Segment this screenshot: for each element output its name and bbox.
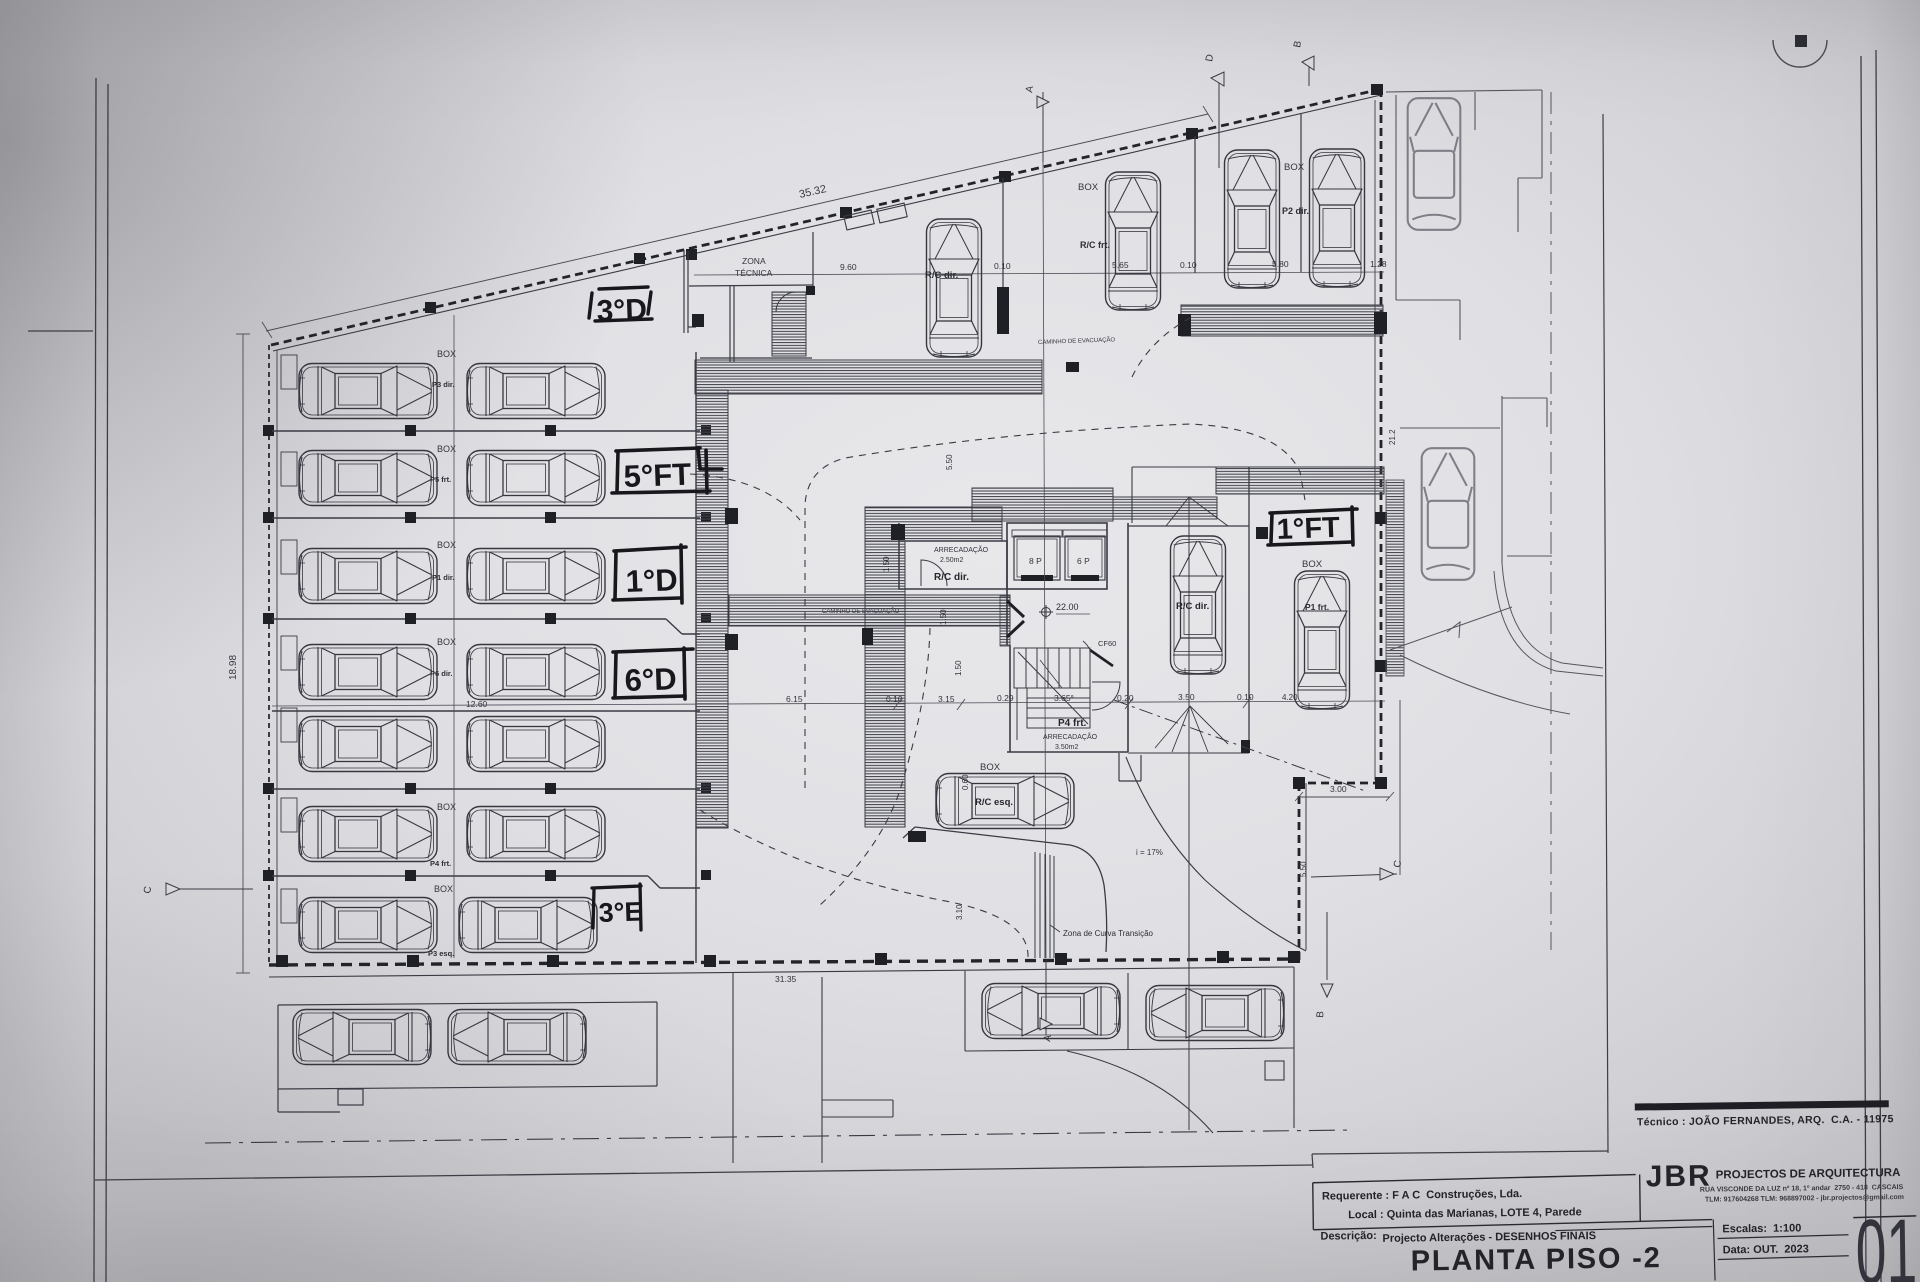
svg-text:35.32: 35.32 (798, 183, 828, 201)
svg-text:5°FT: 5°FT (623, 457, 692, 494)
svg-text:P1 dir.: P1 dir. (432, 573, 455, 582)
svg-text:C: C (1392, 859, 1404, 868)
svg-text:Data: OUT. 2023: Data: OUT. 2023 (1723, 1243, 1809, 1256)
svg-text:5.65: 5.65 (1112, 260, 1129, 270)
svg-text:BOX: BOX (437, 444, 456, 454)
svg-text:BOX: BOX (1302, 559, 1323, 570)
svg-text:BOX: BOX (1078, 182, 1099, 193)
svg-text:2.50m2: 2.50m2 (940, 557, 963, 564)
svg-text:P4 frt.: P4 frt. (430, 859, 451, 868)
svg-text:PLANTA PISO -2: PLANTA PISO -2 (1411, 1242, 1662, 1277)
svg-text:3.10: 3.10 (955, 904, 964, 920)
svg-text:6.15: 6.15 (786, 694, 803, 704)
svg-text:1°FT: 1°FT (1276, 512, 1341, 546)
svg-text:21.2: 21.2 (1388, 429, 1397, 445)
svg-text:BOX: BOX (437, 540, 456, 550)
svg-text:ARRECADAÇÃO: ARRECADAÇÃO (934, 545, 989, 554)
svg-text:Requerente : F A C Construçõe: Requerente : F A C Construções, Lda. (1322, 1188, 1522, 1203)
svg-text:12.60: 12.60 (466, 699, 488, 709)
svg-text:ZONA: ZONA (742, 256, 766, 266)
svg-text:22.00: 22.00 (1056, 602, 1079, 612)
svg-text:3.65°: 3.65° (1054, 693, 1074, 703)
svg-text:1.28: 1.28 (1370, 259, 1387, 269)
svg-text:3.15: 3.15 (938, 694, 955, 704)
svg-text:Técnico : JOÃO FERNANDES, ARQ.: Técnico : JOÃO FERNANDES, ARQ. C.A. - 11… (1637, 1112, 1894, 1128)
svg-text:18.98: 18.98 (228, 655, 239, 680)
svg-text:3°D: 3°D (596, 293, 647, 328)
svg-text:PROJECTOS DE ARQUITECTURA: PROJECTOS DE ARQUITECTURA (1716, 1167, 1901, 1181)
svg-text:P3 dir.: P3 dir. (432, 380, 455, 389)
svg-text:1.50: 1.50 (939, 609, 948, 625)
svg-text:R/C dir.: R/C dir. (934, 572, 969, 583)
svg-text:i = 17%: i = 17% (1136, 848, 1163, 857)
svg-text:C: C (142, 885, 154, 894)
svg-text:R/C dir.: R/C dir. (1176, 601, 1209, 612)
svg-text:RUA VISCONDE DA LUZ nº 18, 1º: RUA VISCONDE DA LUZ nº 18, 1º andar 2750… (1700, 1184, 1904, 1194)
svg-text:A: A (1024, 85, 1036, 94)
svg-text:5.50: 5.50 (945, 454, 954, 470)
svg-text:5.50: 5.50 (1299, 861, 1308, 877)
svg-text:P2 dir.: P2 dir. (1282, 206, 1309, 216)
svg-text:ARRECADAÇÃO: ARRECADAÇÃO (1043, 732, 1098, 741)
svg-text:CF60: CF60 (1098, 639, 1116, 648)
svg-text:31.35: 31.35 (775, 974, 797, 984)
svg-text:Zona de Curva Transição: Zona de Curva Transição (1063, 929, 1154, 938)
svg-text:5.80: 5.80 (1272, 259, 1289, 269)
svg-text:0.10: 0.10 (1237, 692, 1254, 702)
svg-text:BOX: BOX (437, 349, 456, 359)
svg-text:3°E: 3°E (598, 896, 643, 928)
svg-text:0.10: 0.10 (1180, 260, 1197, 270)
svg-text:BOX: BOX (437, 637, 456, 647)
svg-text:BOX: BOX (437, 802, 456, 812)
svg-text:CAMINHO DE EVACUAÇÃO: CAMINHO DE EVACUAÇÃO (1038, 336, 1116, 346)
svg-text:P1 frt.: P1 frt. (1305, 602, 1329, 612)
svg-text:4.20: 4.20 (1282, 693, 1298, 702)
svg-text:1.50: 1.50 (954, 660, 963, 676)
svg-text:P4 frt.: P4 frt. (1058, 718, 1087, 729)
svg-text:B: B (1292, 40, 1304, 49)
svg-text:Local : Quinta das Marianas, L: Local : Quinta das Marianas, LOTE 4, Par… (1348, 1206, 1582, 1221)
svg-text:6 P: 6 P (1077, 556, 1090, 566)
svg-text:D: D (1204, 53, 1216, 62)
svg-text:B: B (1315, 1010, 1327, 1018)
svg-text:1.50: 1.50 (882, 556, 891, 572)
svg-text:3.00: 3.00 (1330, 784, 1347, 794)
svg-text:TÉCNICA: TÉCNICA (735, 268, 773, 278)
svg-text:01: 01 (1855, 1200, 1918, 1282)
svg-text:9.60: 9.60 (840, 262, 857, 272)
svg-text:BOX: BOX (1284, 162, 1305, 173)
svg-text:3.50m2: 3.50m2 (1055, 744, 1078, 751)
svg-text:6°D: 6°D (624, 661, 677, 698)
svg-text:R/C dir.: R/C dir. (925, 270, 958, 281)
svg-text:R/C frt.: R/C frt. (1080, 240, 1110, 250)
svg-text:BOX: BOX (434, 884, 453, 894)
svg-text:1°D: 1°D (625, 562, 678, 599)
svg-text:BOX: BOX (980, 762, 1001, 773)
svg-text:R/C esq.: R/C esq. (975, 797, 1013, 808)
svg-text:8 P: 8 P (1029, 556, 1042, 566)
svg-text:0.29: 0.29 (997, 693, 1014, 703)
svg-text:Descrição:: Descrição: (1320, 1230, 1376, 1243)
svg-text:0.10: 0.10 (886, 694, 903, 704)
svg-text:Escalas: 1:100: Escalas: 1:100 (1722, 1222, 1801, 1235)
svg-text:3.50: 3.50 (1178, 692, 1195, 702)
